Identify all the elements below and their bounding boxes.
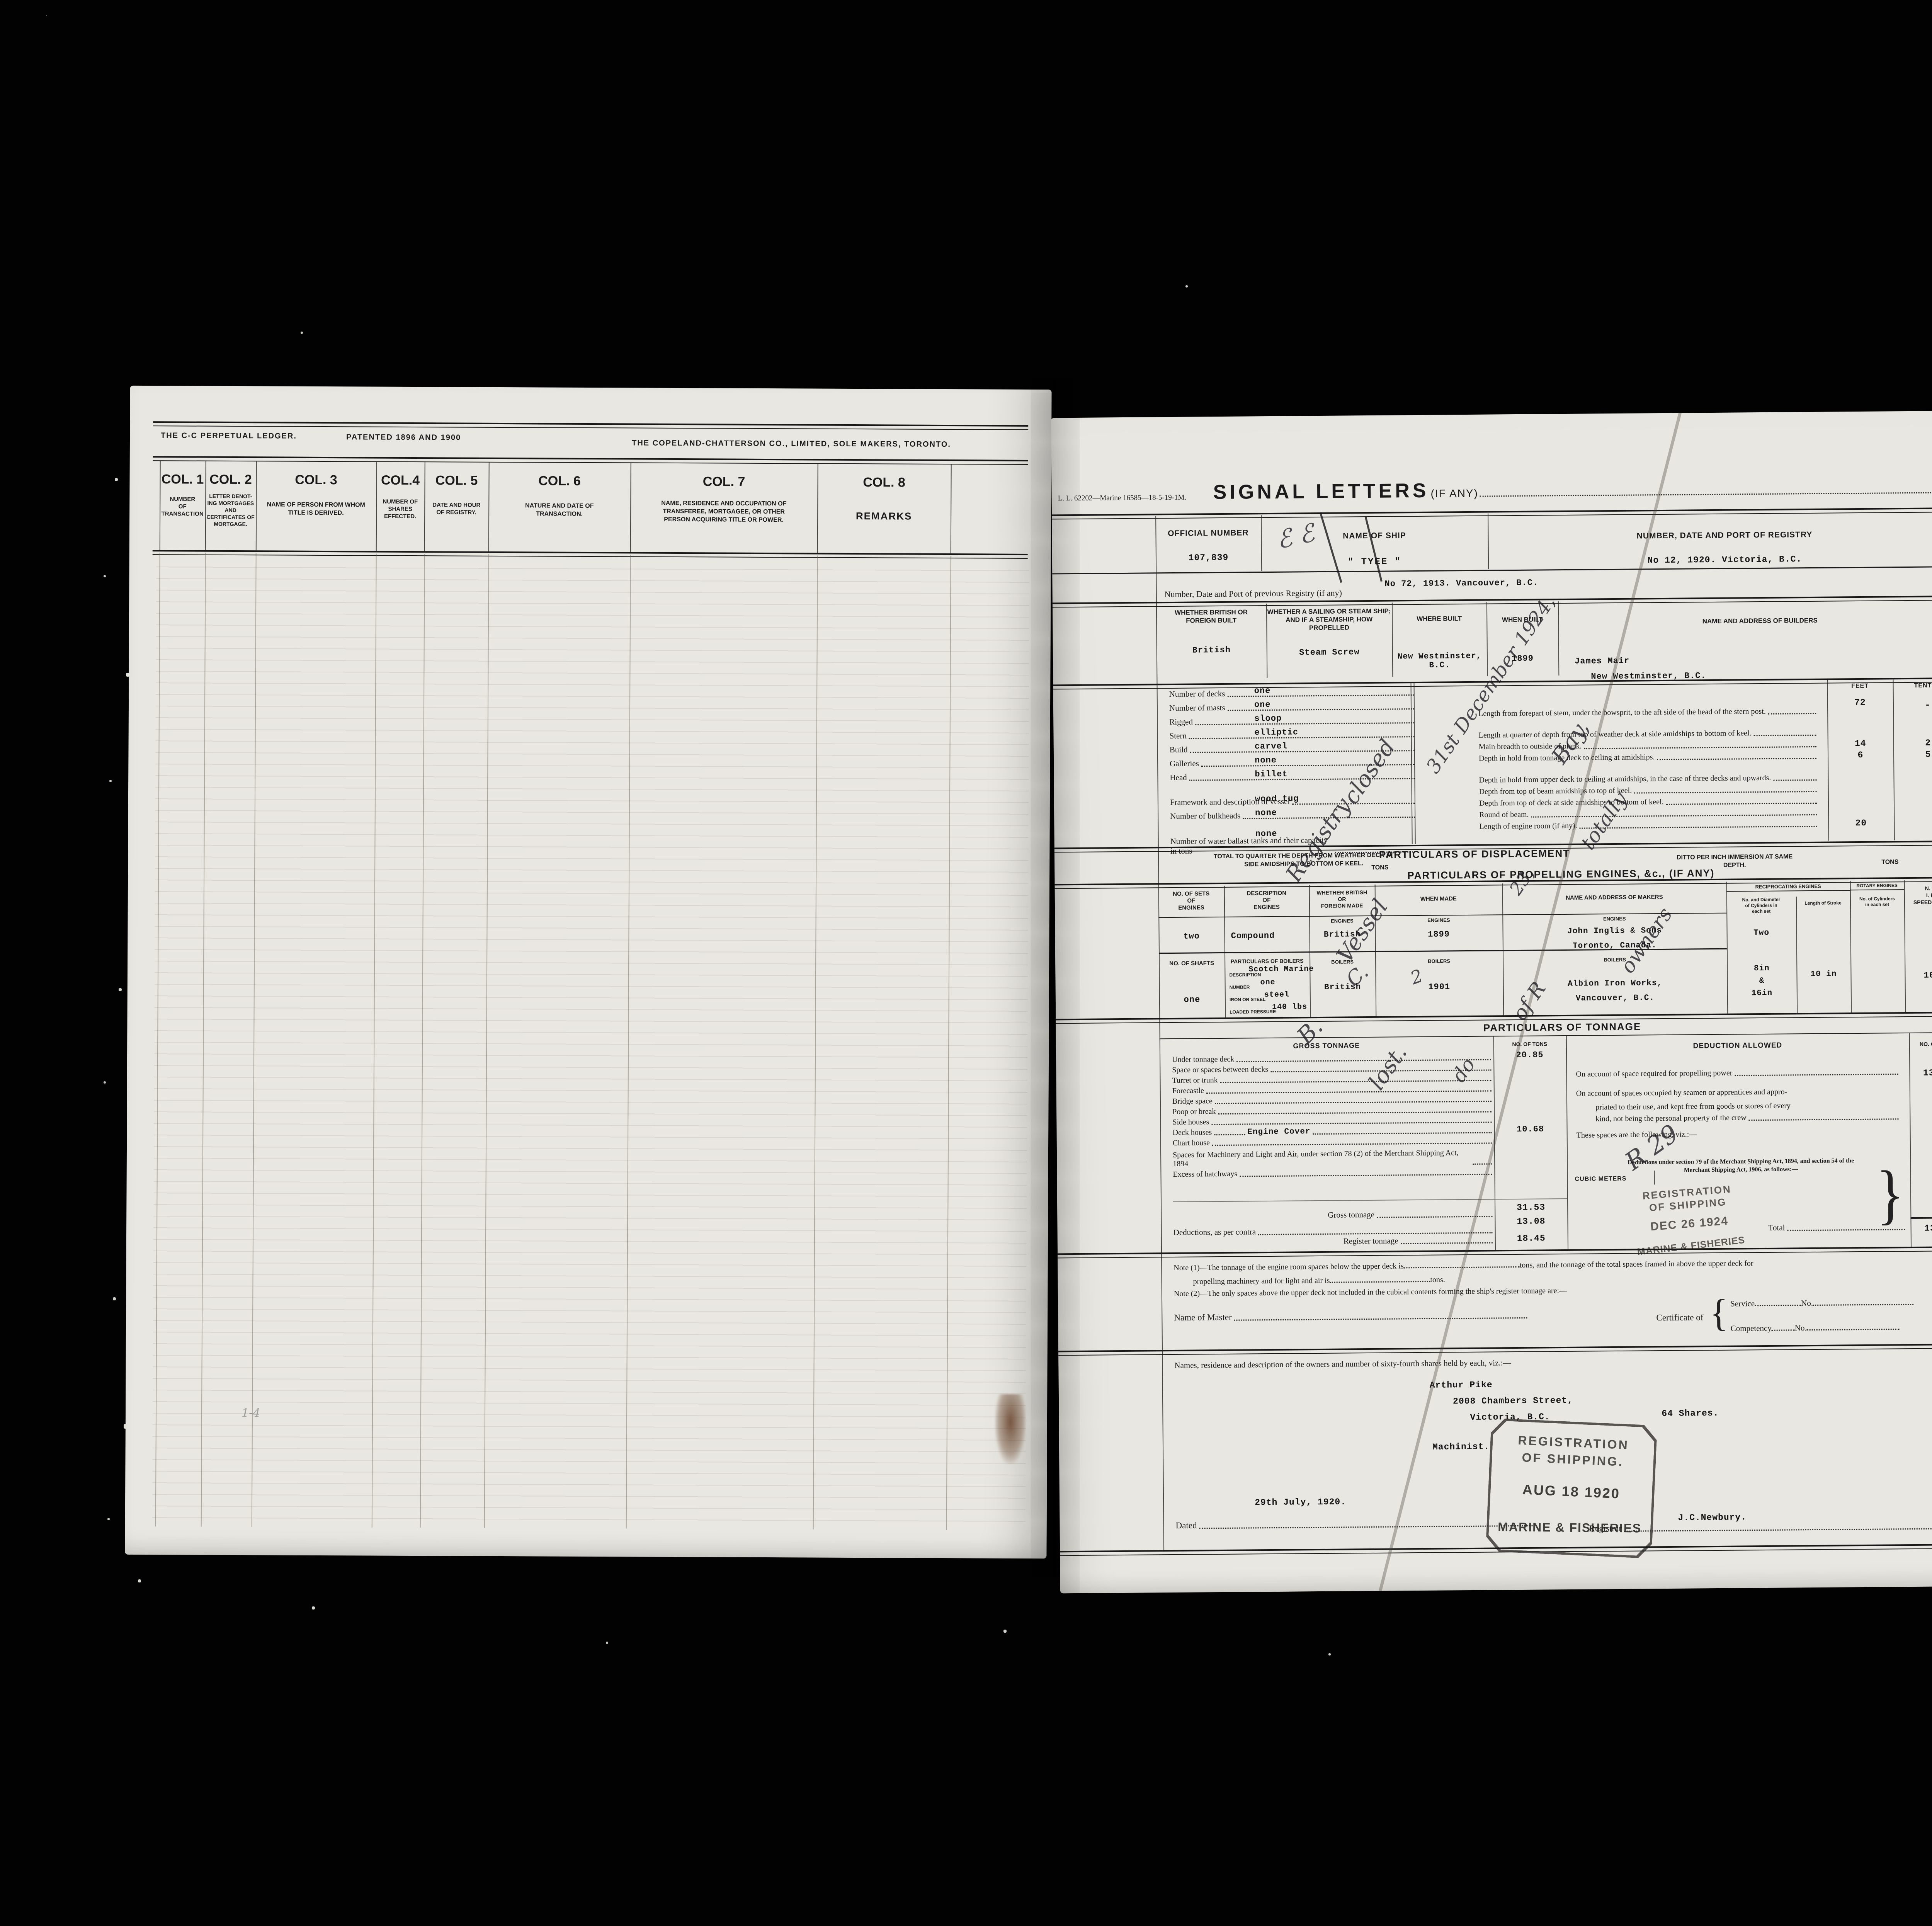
column-header-col5: COL. 5 DATE AND HOUR OF REGISTRY. bbox=[424, 462, 489, 516]
column-header-col8: COL. 8 REMARKS bbox=[817, 464, 951, 523]
engines-h-rotary-sub: No. of Cylinders in each set bbox=[1850, 896, 1904, 908]
leader bbox=[1234, 1317, 1527, 1321]
ledger-ruling bbox=[152, 556, 1030, 1530]
official-number-value: 107,839 bbox=[1156, 552, 1261, 563]
rule-line bbox=[1173, 1198, 1567, 1202]
dim-value: none bbox=[1255, 808, 1277, 818]
boiler-when-value: 1901 bbox=[1376, 982, 1503, 992]
tenths-header: TENTHS bbox=[1893, 682, 1932, 689]
dim-value: carvel bbox=[1255, 742, 1287, 752]
list-item: Build bbox=[1170, 739, 1417, 755]
tonnage-label: Under tonnage deck bbox=[1172, 1055, 1234, 1064]
total-value: 13.08 bbox=[1911, 1223, 1932, 1234]
col4-title: COL.4 bbox=[376, 473, 424, 488]
service-no-label: No. bbox=[1801, 1298, 1813, 1308]
boiler-num-value: one bbox=[1260, 978, 1275, 987]
engines-h-sets: NO. OF SETS OF ENGINES bbox=[1158, 890, 1224, 912]
register-tonnage-value: 18.45 bbox=[1495, 1233, 1568, 1244]
leader bbox=[1584, 746, 1816, 749]
ink-stain bbox=[995, 1394, 1026, 1464]
scanned-ledger-photo: THE C-C PERPETUAL LEDGER. PATENTED 1896 … bbox=[0, 0, 1932, 1926]
certificate-competency-row: CompetencyNo. bbox=[1731, 1321, 1932, 1334]
measure-label: Length of engine room (if any). bbox=[1479, 822, 1577, 831]
tonnage-label: Spaces for Machinery and Light and Air, … bbox=[1173, 1148, 1470, 1169]
signal-letters-row: SIGNAL LETTERS (IF ANY) bbox=[1213, 475, 1932, 504]
col6-desc: NATURE AND DATE OF TRANSACTION. bbox=[488, 502, 630, 519]
dim-label: Number of bulkheads bbox=[1170, 811, 1240, 821]
registrar-label: Registrar bbox=[1589, 1523, 1622, 1534]
engines-h-stroke: Length of Stroke bbox=[1796, 900, 1850, 906]
col5-desc: DATE AND HOUR OF REGISTRY. bbox=[424, 501, 488, 516]
boiler-num-label: NUMBER bbox=[1230, 984, 1250, 990]
deduction-row2a: On account of spaces occupied by seamen … bbox=[1576, 1088, 1787, 1098]
built-v5a: James Mair bbox=[1575, 656, 1629, 666]
dim-label: Stern bbox=[1169, 731, 1187, 741]
col6-title: COL. 6 bbox=[488, 473, 630, 489]
list-item: Length of engine room (if any). bbox=[1479, 817, 1819, 831]
registrar-value: J.C.Newbury. bbox=[1678, 1512, 1747, 1523]
built-v2: Steam Screw bbox=[1267, 647, 1392, 658]
rule-line bbox=[1058, 1344, 1932, 1356]
cylinder-dia-2: & bbox=[1727, 976, 1797, 985]
ship-name-label: NAME OF SHIP bbox=[1261, 531, 1488, 542]
leader bbox=[1190, 750, 1415, 753]
tonnage-label: Chart house bbox=[1173, 1138, 1210, 1148]
engine-sets-value: two bbox=[1159, 931, 1225, 941]
page-edge-speckles bbox=[46, 15, 47, 16]
deduction-tons-header: NO. OF TONS bbox=[1909, 1041, 1932, 1047]
column-headers: COL. 1 NUMBER OF TRANSACTION COL. 2 LETT… bbox=[129, 461, 1051, 554]
line bbox=[1375, 885, 1377, 1016]
signal-letters-title: SIGNAL LETTERS bbox=[1213, 480, 1429, 504]
leader bbox=[1189, 736, 1415, 739]
left-ledger-page: THE C-C PERPETUAL LEDGER. PATENTED 1896 … bbox=[125, 386, 1051, 1558]
deductions-value: 13.08 bbox=[1495, 1216, 1567, 1227]
tonnage-label: Forecastle bbox=[1172, 1086, 1204, 1096]
dim-value: wood tug bbox=[1255, 794, 1299, 804]
engines-h-rotary: ROTARY ENGINES bbox=[1850, 883, 1904, 890]
dim-value: none bbox=[1255, 829, 1277, 839]
line bbox=[1909, 1033, 1912, 1247]
measure-feet: 6 bbox=[1828, 750, 1893, 760]
engine-desc-value: Compound bbox=[1231, 931, 1275, 941]
rule-line bbox=[1052, 566, 1932, 575]
dim-label: Build bbox=[1170, 745, 1188, 755]
tonnage-label: Side houses bbox=[1172, 1118, 1209, 1127]
col8-title: COL. 8 bbox=[817, 475, 951, 491]
deduction-row3: These spaces are the following, viz.:— bbox=[1577, 1130, 1697, 1140]
plate-maker-left: THE C-C PERPETUAL LEDGER. bbox=[161, 431, 297, 441]
plate-maker-right: THE COPELAND-CHATTERSON CO., LIMITED, SO… bbox=[536, 438, 951, 449]
tonnage-label: Space or spaces between decks bbox=[1172, 1065, 1268, 1075]
boiler-desc-value: Scotch Marine bbox=[1248, 965, 1314, 974]
list-item: Number of masts bbox=[1169, 697, 1417, 713]
measure-tenths: 2 bbox=[1893, 738, 1932, 748]
column-header-col4: COL.4 NUMBER OF SHARES EFFECTED. bbox=[376, 462, 425, 521]
tonnage-label: Excess of hatchways bbox=[1173, 1170, 1237, 1179]
right-register-page: L. L. 62202—Marine 16585—18-5-19-1M. SIG… bbox=[1051, 411, 1932, 1594]
displacement-title: PARTICULARS OF DISPLACEMENT bbox=[1379, 847, 1570, 861]
feet-header: FEET bbox=[1827, 682, 1893, 690]
leader bbox=[1580, 826, 1817, 829]
rule-line bbox=[1159, 948, 1727, 954]
official-number-label: OFFICIAL NUMBER bbox=[1155, 528, 1261, 538]
deduction-row2c: kind, not being the personal property of… bbox=[1595, 1113, 1747, 1123]
engine-when-value: 1899 bbox=[1375, 929, 1503, 940]
engines-h-origin: WHETHER BRITISH OR FOREIGN MADE bbox=[1309, 889, 1375, 909]
competency-no-label: No. bbox=[1795, 1323, 1807, 1332]
gross-tonnage-row: Gross tonnage bbox=[1328, 1209, 1495, 1220]
column-header-col6: COL. 6 NATURE AND DATE OF TRANSACTION. bbox=[488, 463, 631, 519]
list-item: Length at quarter of depth from top of w… bbox=[1478, 716, 1818, 740]
deduction-row2b: priated to their use, and kept free from… bbox=[1595, 1101, 1791, 1112]
deduction-header: DEDUCTION ALLOWED bbox=[1566, 1040, 1909, 1051]
sub-boilers-label: BOILERS bbox=[1310, 959, 1375, 965]
boiler-iron-value: steel bbox=[1264, 990, 1289, 1000]
engine-cover-value: Engine Cover bbox=[1247, 1127, 1310, 1137]
leader bbox=[1754, 735, 1816, 736]
deduction-row2c-row: kind, not being the personal property of… bbox=[1595, 1112, 1901, 1123]
register-row: Register tonnage bbox=[1344, 1235, 1495, 1246]
leader bbox=[1657, 758, 1817, 760]
leader bbox=[1214, 1134, 1245, 1136]
column-header-col7: COL. 7 NAME, RESIDENCE AND OCCUPATION OF… bbox=[630, 463, 818, 524]
engines-h-nhp: N. H. P. I. H. P. SPEED OF SHIP bbox=[1904, 885, 1932, 906]
leader bbox=[1201, 764, 1415, 767]
certificate-brace: { bbox=[1709, 1291, 1728, 1335]
deduction-sections-note: Deductions under section 79 of the Merch… bbox=[1577, 1156, 1905, 1175]
line bbox=[1558, 601, 1560, 675]
measure-tenths: - bbox=[1893, 700, 1932, 710]
plate-patent: PATENTED 1896 AND 1900 bbox=[346, 433, 461, 442]
dim-label: Rigged bbox=[1169, 717, 1193, 727]
registration-stamp-aug: REGISTRATION OF SHIPPING. AUG 18 1920 MA… bbox=[1485, 1418, 1657, 1559]
column-header-col3: COL. 3 NAME OF PERSON FROM WHOM TITLE IS… bbox=[256, 461, 376, 517]
note-1-line2: propelling machinery and for light and a… bbox=[1193, 1271, 1811, 1286]
signal-letters-suffix: (IF ANY) bbox=[1430, 487, 1478, 500]
leader bbox=[1189, 778, 1415, 781]
engines-h-desc: DESCRIPTION OF ENGINES bbox=[1224, 890, 1309, 911]
engines-h-recip: RECIPROCATING ENGINES bbox=[1726, 883, 1850, 892]
total-label: Total bbox=[1769, 1223, 1785, 1233]
owner-street: 2008 Chambers Street, bbox=[1453, 1395, 1573, 1406]
cylinder-dia-3: 16in bbox=[1727, 989, 1797, 998]
measure-feet: 20 bbox=[1828, 818, 1894, 828]
built-h4: WHEN BUILT bbox=[1486, 616, 1558, 624]
previous-registry-label: Number, Date and Port of previous Regist… bbox=[1165, 588, 1342, 600]
leader bbox=[1401, 1242, 1493, 1244]
list-item: Number of decks bbox=[1169, 683, 1417, 699]
dated-row: Dated bbox=[1176, 1518, 1535, 1531]
built-h3: WHERE BUILT bbox=[1392, 615, 1486, 623]
col1-desc: NUMBER OF TRANSACTION bbox=[160, 495, 205, 518]
dated-label: Dated bbox=[1176, 1521, 1197, 1531]
tons-col-header: NO. OF TONS bbox=[1493, 1041, 1566, 1047]
sub-engines-label: ENGINES bbox=[1375, 917, 1502, 924]
boiler-press-value: 140 lbs bbox=[1272, 1002, 1307, 1012]
measure-tenths: 5 bbox=[1893, 749, 1932, 760]
tons-label-2: TONS bbox=[1881, 859, 1898, 866]
col2-desc: LETTER DENOT- ING MORTGAGES AND CERTIFIC… bbox=[205, 493, 256, 528]
tonnage-label: Bridge space bbox=[1172, 1097, 1213, 1106]
built-h1: WHETHER BRITISH OR FOREIGN BUILT bbox=[1156, 608, 1266, 625]
sub-boilers-label: BOILERS bbox=[1375, 958, 1503, 965]
total-row: Total bbox=[1769, 1222, 1908, 1233]
boilers-title: PARTICULARS OF BOILERS bbox=[1225, 958, 1310, 965]
column-header-col1: COL. 1 NUMBER OF TRANSACTION bbox=[160, 461, 206, 518]
engine-origin-value: British bbox=[1310, 930, 1375, 939]
tonnage-label: Turret or trunk bbox=[1172, 1076, 1218, 1085]
cylinder-count: Two bbox=[1727, 928, 1796, 937]
list-item: Rigged bbox=[1169, 711, 1417, 727]
measure-label: Depth from top of deck at side amidships… bbox=[1479, 798, 1664, 808]
leader bbox=[1258, 1232, 1493, 1235]
dim-value: billet bbox=[1255, 769, 1287, 779]
blank bbox=[1330, 1274, 1430, 1283]
registry-label: NUMBER, DATE AND PORT OF REGISTRY bbox=[1488, 529, 1932, 542]
master-row: Name of Master bbox=[1174, 1310, 1529, 1323]
owner-occupation: Machinist. bbox=[1432, 1442, 1490, 1452]
boiler-origin-value: British bbox=[1310, 983, 1376, 992]
gross-tonnage-label: Gross tonnage bbox=[1328, 1210, 1374, 1220]
leader bbox=[1473, 1164, 1492, 1165]
leader bbox=[1735, 1074, 1898, 1076]
competency-label: Competency bbox=[1731, 1324, 1772, 1333]
dim-label: Head bbox=[1170, 773, 1187, 783]
gross-tonnage-value: 31.53 bbox=[1495, 1202, 1567, 1213]
service-label: Service bbox=[1730, 1299, 1755, 1308]
dim-label: Galleries bbox=[1170, 759, 1199, 769]
col1-title: COL. 1 bbox=[160, 472, 205, 487]
leader bbox=[1787, 1229, 1905, 1231]
dim-value: sloop bbox=[1254, 714, 1282, 724]
form-number: L. L. 62202—Marine 16585—18-5-19-1M. bbox=[1058, 493, 1187, 503]
rule-line bbox=[153, 421, 1028, 430]
col7-desc: NAME, RESIDENCE AND OCCUPATION OF TRANSF… bbox=[630, 499, 817, 524]
dim-value: one bbox=[1254, 700, 1271, 709]
shafts-value: one bbox=[1159, 995, 1225, 1005]
registry-value: No 12, 1920. Victoria, B.C. bbox=[1488, 553, 1932, 567]
master-label: Name of Master bbox=[1174, 1312, 1232, 1323]
tonnage-value: 20.85 bbox=[1493, 1050, 1566, 1060]
list-item: Length from forepart of stem, under the … bbox=[1478, 694, 1818, 718]
stroke-value: 10 in bbox=[1796, 970, 1850, 979]
boiler-iron-label: IRON OR STEEL bbox=[1230, 997, 1265, 1002]
engines-h-when: WHEN MADE bbox=[1375, 895, 1502, 903]
tonnage-label: Poop or break bbox=[1172, 1107, 1216, 1116]
leader bbox=[1749, 1118, 1899, 1121]
measure-feet: 72 bbox=[1827, 697, 1893, 708]
rule-line bbox=[1910, 1217, 1932, 1219]
certificate-label: Certificate of bbox=[1656, 1312, 1703, 1323]
built-h2: WHETHER A SAILING OR STEAM SHIP; AND IF … bbox=[1266, 607, 1392, 633]
blank bbox=[1813, 1297, 1913, 1306]
col3-title: COL. 3 bbox=[256, 472, 376, 488]
leader bbox=[1240, 1174, 1492, 1177]
dim-label: Number of decks bbox=[1169, 689, 1225, 699]
register-label: Register tonnage bbox=[1344, 1236, 1398, 1246]
built-v3: New Westminster, B.C. bbox=[1392, 652, 1487, 670]
list-item: Spaces for Machinery and Light and Air, … bbox=[1173, 1145, 1494, 1169]
certificate-service-row: ServiceNo. bbox=[1730, 1296, 1932, 1309]
leader bbox=[1292, 803, 1415, 805]
built-h5: NAME AND ADDRESS OF BUILDERS bbox=[1558, 616, 1932, 626]
dim-value: one bbox=[1254, 686, 1271, 696]
dated-value: 29th July, 1920. bbox=[1255, 1497, 1346, 1508]
leader bbox=[1666, 803, 1817, 805]
dim-label: Number of masts bbox=[1169, 703, 1225, 713]
sub-boilers-label: BOILERS bbox=[1503, 956, 1727, 964]
note1-a: Note (1)—The tonnage of the engine room … bbox=[1173, 1262, 1404, 1272]
measure-label: Depth in hold from tonnage deck to ceili… bbox=[1479, 753, 1655, 763]
blank bbox=[1772, 1322, 1795, 1331]
shafts-label: NO. OF SHAFTS bbox=[1159, 960, 1225, 967]
dim-value: none bbox=[1255, 755, 1277, 765]
contra-label: Deductions, as per contra bbox=[1173, 1227, 1256, 1237]
leader bbox=[1624, 1528, 1932, 1532]
measure-label: Main breadth to outside of plank. bbox=[1479, 742, 1582, 752]
boiler-press-label: LOADED PRESSURE bbox=[1230, 1009, 1276, 1015]
tonnage-value: 10.68 bbox=[1494, 1124, 1566, 1134]
leader bbox=[1270, 1070, 1491, 1072]
note-2: Note (2)—The only spaces above the upper… bbox=[1174, 1283, 1932, 1298]
deduction-row1-label: On account of space required for propell… bbox=[1576, 1069, 1732, 1079]
nhp-value: 10.6 bbox=[1905, 970, 1932, 980]
owner-name: Arthur Pike bbox=[1430, 1380, 1493, 1390]
leader bbox=[1773, 779, 1816, 781]
col2-title: COL. 2 bbox=[205, 472, 256, 488]
col7-title: COL. 7 bbox=[630, 474, 817, 490]
list-item: Head bbox=[1170, 767, 1417, 783]
leader bbox=[1634, 791, 1817, 794]
deduction-row1: On account of space required for propell… bbox=[1576, 1067, 1900, 1079]
cubic-meters-label: CUBIC METERS bbox=[1575, 1176, 1627, 1183]
leader bbox=[1768, 713, 1816, 715]
blank bbox=[1755, 1298, 1801, 1306]
note1-d: tons. bbox=[1430, 1275, 1445, 1284]
signal-letters-blank bbox=[1480, 487, 1932, 497]
leader bbox=[1313, 1132, 1492, 1135]
built-v4: 1899 bbox=[1487, 653, 1558, 664]
col4-desc: NUMBER OF SHARES EFFECTED. bbox=[376, 498, 424, 521]
tonnage-label: Deck houses bbox=[1173, 1128, 1212, 1137]
engines-table: NO. OF SETS OF ENGINES DESCRIPTION OF EN… bbox=[1055, 877, 1932, 1019]
note1-c: propelling machinery and for light and a… bbox=[1193, 1276, 1330, 1286]
list-item: Number of bulkheads bbox=[1170, 805, 1417, 821]
boiler-maker-value2: Vancouver, B.C. bbox=[1503, 993, 1727, 1004]
previous-registry-value: No 72, 1913. Vancouver, B.C. bbox=[1384, 578, 1538, 589]
measure-label: Depth from top of beam amidships to top … bbox=[1479, 786, 1632, 796]
col3-desc: NAME OF PERSON FROM WHOM TITLE IS DERIVE… bbox=[256, 500, 376, 517]
owners-intro: Names, residence and description of the … bbox=[1174, 1354, 1932, 1370]
col8-desc: REMARKS bbox=[817, 510, 951, 523]
measurement-list: Length from forepart of stem, under the … bbox=[1478, 694, 1820, 831]
engine-maker-value: John Inglis & Sons bbox=[1502, 926, 1726, 937]
total-brace: } bbox=[1876, 1156, 1905, 1232]
list-item: Galleries bbox=[1170, 753, 1417, 769]
column-header-col2: COL. 2 LETTER DENOT- ING MORTGAGES AND C… bbox=[205, 461, 256, 528]
rule-line bbox=[1052, 507, 1932, 520]
ship-name-value: " TYEE " bbox=[1261, 556, 1488, 568]
col5-title: COL. 5 bbox=[424, 473, 488, 488]
cylinder-dia-1: 8in bbox=[1727, 964, 1796, 973]
leader bbox=[1377, 1216, 1492, 1218]
note1-b: tons, and the tonnage of the total space… bbox=[1520, 1259, 1753, 1269]
boiler-maker-value: Albion Iron Works, bbox=[1503, 978, 1727, 989]
engines-h-cyl: No. and Diameter of Cylinders in each se… bbox=[1726, 897, 1796, 914]
engines-h-makers: NAME AND ADDRESS OF MAKERS bbox=[1502, 893, 1726, 902]
gross-tonnage-header: GROSS TONNAGE bbox=[1160, 1040, 1493, 1051]
list-item: Depth in hold from upper deck to ceiling… bbox=[1479, 761, 1819, 785]
note-1-line1: Note (1)—The tonnage of the engine room … bbox=[1173, 1256, 1932, 1273]
blank bbox=[1807, 1322, 1900, 1331]
leader bbox=[1195, 722, 1414, 725]
blank bbox=[1404, 1260, 1520, 1268]
measure-feet: 14 bbox=[1828, 738, 1893, 749]
leader bbox=[1199, 1525, 1533, 1529]
sub-engines-label: ENGINES bbox=[1502, 915, 1726, 923]
measure-label: Round of beam. bbox=[1479, 810, 1529, 820]
owner-shares: 64 Shares. bbox=[1662, 1408, 1719, 1419]
deduction-row1-value: 13.08 bbox=[1909, 1068, 1932, 1078]
hull-detail-list: Number of decks Number of masts Rigged S… bbox=[1169, 683, 1418, 847]
sub-engines-label: ENGINES bbox=[1309, 918, 1375, 924]
tonnage-rows: Under tonnage deck Space or spaces betwe… bbox=[1172, 1051, 1495, 1179]
built-v1: British bbox=[1156, 645, 1267, 655]
dim-value: elliptic bbox=[1254, 727, 1298, 737]
